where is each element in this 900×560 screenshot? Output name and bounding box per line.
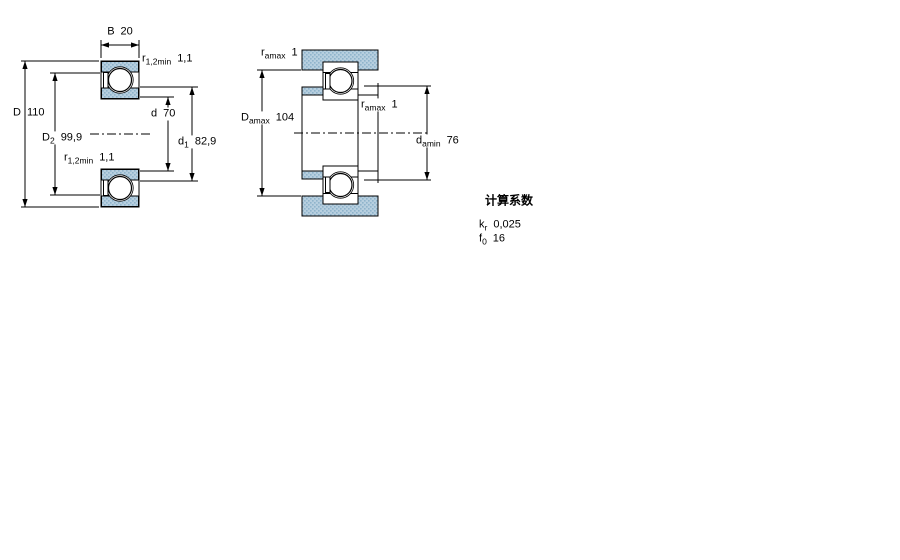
calculation-factors-title: 计算系数 bbox=[485, 195, 533, 208]
dim-label-r12min-top: r1,2min1,1 bbox=[142, 52, 192, 65]
dim-label-r12min-mid: r1,2min1,1 bbox=[62, 151, 116, 164]
dim-label-D2: D299,9 bbox=[40, 131, 84, 144]
factor-kr: kr0,025 bbox=[479, 218, 521, 231]
dim-label-B: B20 bbox=[107, 26, 133, 39]
bearing-section-bottom bbox=[323, 166, 358, 204]
dim-label-ramax-mid: ramax1 bbox=[359, 98, 400, 111]
dim-label-d: d70 bbox=[149, 108, 177, 121]
shaft-shoulder-bottom bbox=[302, 171, 324, 179]
dim-label-d1: d182,9 bbox=[176, 135, 218, 148]
shield bbox=[326, 177, 331, 193]
shield bbox=[104, 73, 109, 89]
dim-label-ramax-top: ramax1 bbox=[261, 46, 298, 59]
ball bbox=[109, 69, 132, 92]
dim-label-damin: damin76 bbox=[414, 134, 461, 147]
abutment-figure bbox=[257, 50, 431, 216]
factor-f0: f016 bbox=[479, 232, 505, 245]
shield bbox=[104, 180, 109, 196]
technical-drawing bbox=[0, 0, 900, 560]
bearing-section-bottom bbox=[101, 169, 139, 207]
dim-label-D: D110 bbox=[13, 107, 45, 120]
shaft-shoulder-top bbox=[302, 87, 324, 95]
bearing-section-top bbox=[323, 62, 358, 100]
dim-label-Damax: Damax104 bbox=[239, 111, 296, 124]
ball bbox=[329, 174, 352, 197]
dimension-B bbox=[101, 40, 139, 58]
ball bbox=[109, 177, 132, 200]
bearing-section-top bbox=[101, 61, 139, 99]
bearing-drawing-page: B20 r1,2min1,1 D110 D299,9 r1,2min1,1 d7… bbox=[0, 0, 900, 560]
shield bbox=[326, 74, 331, 90]
ball bbox=[329, 70, 352, 93]
